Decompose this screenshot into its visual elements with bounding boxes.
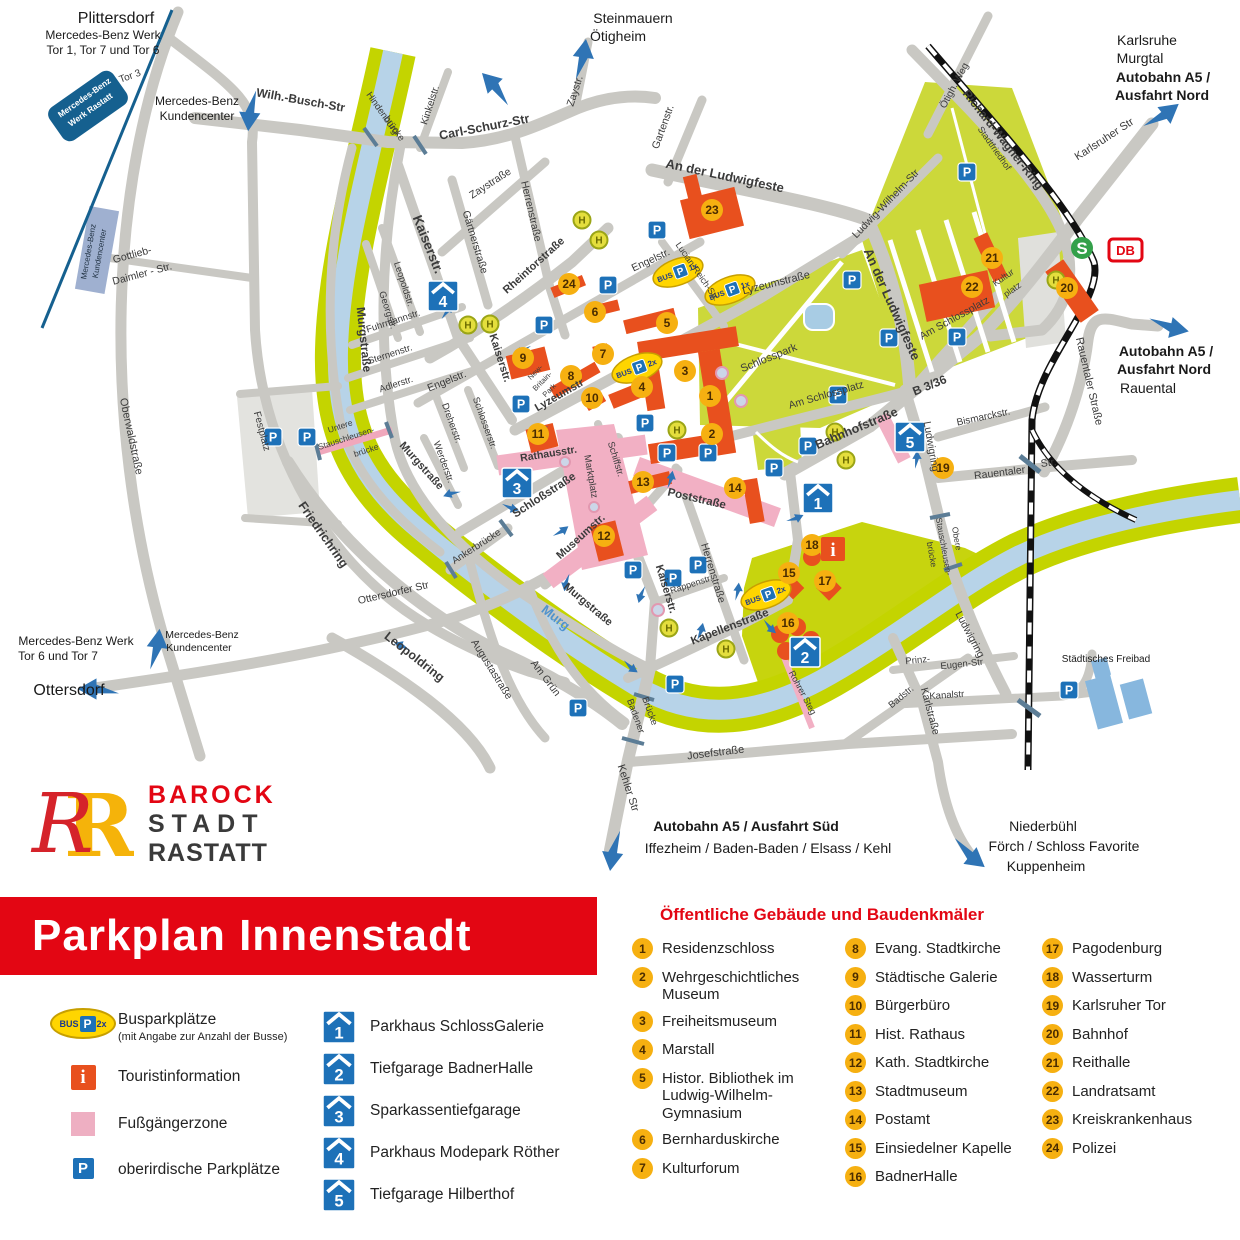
poi-number-badge: 19: [1042, 995, 1063, 1016]
place-label: Autobahn A5 / Ausfahrt Süd: [653, 818, 839, 834]
parking-icon-letter: P: [694, 559, 702, 573]
garage-icon-number: 2: [334, 1066, 343, 1085]
poi-label: Landratsamt: [1072, 1081, 1155, 1100]
poi-number-badge: 2: [632, 967, 653, 988]
freibad-building: [1085, 674, 1123, 729]
bus-stop-icon: H: [661, 620, 678, 637]
db-logo-icon: DB: [1109, 239, 1142, 261]
place-label: Ausfahrt Nord: [1117, 361, 1211, 377]
place-label: Iffezheim / Baden-Baden / Elsass / Kehl: [645, 840, 891, 856]
fountain: [735, 395, 747, 407]
garage-icon-number: 5: [334, 1192, 343, 1211]
poi-number-marker: 18: [801, 534, 823, 556]
poi-legend-item: 8Evang. Stadtkirche: [845, 938, 1041, 959]
poi-label: Wehrgeschichtliches Museum: [662, 967, 842, 1004]
poi-number-badge: 15: [845, 1138, 866, 1159]
logo-monogram: R R: [30, 778, 134, 870]
place-label: Mercedes-Benz Werk: [18, 634, 134, 648]
poi-legend-title: Öffentliche Gebäude und Baudenkmäler: [660, 905, 984, 925]
tourist-info-icon: i: [821, 537, 845, 561]
poi-legend-item: 21Reithalle: [1042, 1052, 1232, 1073]
poi-label: Evang. Stadtkirche: [875, 938, 1001, 957]
poi-label: Karlsruher Tor: [1072, 995, 1166, 1014]
poi-label: Reithalle: [1072, 1052, 1130, 1071]
parking-icon-letter: P: [1065, 684, 1073, 698]
place-label: Kundencenter: [160, 109, 235, 123]
poi-number-marker: 9: [512, 347, 534, 369]
poi-number-badge: 10: [845, 995, 866, 1016]
poi-column-3: 17Pagodenburg18Wasserturm19Karlsruher To…: [1042, 938, 1232, 1166]
parking-icon: P: [699, 444, 717, 462]
garage-icon: 3: [323, 1095, 355, 1127]
garage-icon: 5: [322, 1178, 356, 1212]
place-label: Förch / Schloss Favorite: [989, 838, 1140, 854]
pedestrian-icon-wrap: [48, 1112, 118, 1136]
bus-stop-icon: H: [669, 422, 686, 439]
garage-icon: 5: [323, 1179, 355, 1211]
legend-label: Touristinformation: [118, 1065, 240, 1086]
poi-legend-item: 23Kreiskrankenhaus: [1042, 1109, 1232, 1130]
poi-number-badge: 18: [1042, 967, 1063, 988]
parking-icon: P: [765, 459, 783, 477]
bus-stop-letter: H: [578, 216, 585, 227]
poi-label: Stadtmuseum: [875, 1081, 968, 1100]
poi-number-badge: 17: [1042, 938, 1063, 959]
parking-icon-letter: P: [671, 678, 679, 692]
poi-legend-item: 16BadnerHalle: [845, 1166, 1041, 1187]
poi-number-marker: 2: [701, 423, 723, 445]
place-label: Niederbühl: [1009, 818, 1077, 834]
bus-stop-letter: H: [665, 624, 672, 635]
poi-label: Hist. Rathaus: [875, 1024, 965, 1043]
poi-number-text: 3: [682, 364, 689, 378]
poi-legend-item: 24Polizei: [1042, 1138, 1232, 1159]
bus-stop-letter: H: [722, 645, 729, 656]
poi-number-marker: 4: [631, 376, 653, 398]
poi-legend-item: 10Bürgerbüro: [845, 995, 1041, 1016]
db-letters: DB: [1116, 243, 1135, 258]
poi-number-badge: 20: [1042, 1024, 1063, 1045]
poi-number-badge: 13: [845, 1081, 866, 1102]
place-label: Ottersdorf: [33, 682, 105, 699]
bus-stop-letter: H: [673, 426, 680, 437]
poi-number-badge: 7: [632, 1158, 653, 1179]
parking-icon: P: [535, 316, 553, 334]
parking-icon: P: [512, 395, 530, 413]
poi-number-marker: 20: [1056, 277, 1078, 299]
bus-oval-p: P: [80, 1016, 96, 1032]
bus-stop-icon: H: [460, 317, 477, 334]
poi-number-marker: 15: [778, 562, 800, 584]
parking-icon-letter: P: [704, 447, 712, 461]
title-banner: Parkplan Innenstadt: [0, 897, 597, 975]
fountain: [560, 457, 570, 467]
place-label: Kundencenter: [166, 642, 232, 654]
poi-label: Wasserturm: [1072, 967, 1152, 986]
garage-icon: 4: [323, 1137, 355, 1169]
place-label: Karlsruhe: [1117, 32, 1177, 48]
poi-number-badge: 8: [845, 938, 866, 959]
werk-boundary-line: [42, 10, 172, 328]
legend-item-fussgaengerzone: Fußgängerzone: [48, 1112, 316, 1136]
poi-legend-item: 13Stadtmuseum: [845, 1081, 1041, 1102]
direction-arrow-icon: [474, 65, 518, 109]
poi-number-text: 9: [520, 351, 527, 365]
poi-number-text: 14: [728, 481, 742, 495]
poi-number-marker: 11: [527, 423, 549, 445]
poi-label: Bahnhof: [1072, 1024, 1128, 1043]
bus-label: Busparkplätze: [118, 1011, 216, 1028]
poi-number-text: 17: [818, 574, 832, 588]
poi-number-text: 13: [636, 475, 650, 489]
street-label: Tor 3: [118, 68, 143, 86]
poi-number-text: 16: [781, 616, 795, 630]
legend-item-touristinformation: i Touristinformation: [48, 1065, 316, 1090]
poi-number-text: 15: [782, 566, 796, 580]
place-label: Tor 6 und Tor 7: [18, 649, 98, 663]
poi-number-text: 18: [805, 538, 819, 552]
street-label: Str.: [1040, 456, 1057, 470]
garage-icon: 1: [322, 1010, 356, 1044]
poi-legend-item: 20Bahnhof: [1042, 1024, 1232, 1045]
sbahn-letter: S: [1076, 239, 1087, 258]
bus-parking-icon: BUS P 2x: [50, 1008, 116, 1039]
poi-legend-item: 4Marstall: [632, 1039, 842, 1060]
garage-icon-number: 2: [801, 650, 810, 667]
poi-label: Bürgerbüro: [875, 995, 950, 1014]
parking-icon-letter: P: [641, 417, 649, 431]
parking-icon-letter: P: [574, 702, 582, 716]
poi-number-marker: 17: [814, 570, 836, 592]
poi-number-badge: 23: [1042, 1109, 1063, 1130]
place-label: Rauental: [1120, 380, 1176, 396]
garage-icon-number: 4: [439, 294, 448, 311]
legend-label: oberirdische Parkplätze: [118, 1158, 280, 1179]
poi-legend-item: 12Kath. Stadtkirche: [845, 1052, 1041, 1073]
bus-stop-letter: H: [595, 236, 602, 247]
bus-stop-letter: H: [464, 321, 471, 332]
surface-parking-icon: P: [73, 1158, 94, 1179]
garage-icon: 5: [895, 422, 925, 452]
poi-legend-item: 1Residenzschloss: [632, 938, 842, 959]
logo-line-rastatt: RASTATT: [148, 839, 276, 868]
tourist-info-icon: i: [71, 1065, 96, 1090]
legend-label: Busparkplätze(mit Angabe zur Anzahl der …: [118, 1008, 287, 1043]
parking-icon: P: [948, 328, 966, 346]
place-label: Kuppenheim: [1007, 858, 1086, 874]
parking-icon-letter: P: [303, 431, 311, 445]
poi-number-badge: 14: [845, 1109, 866, 1130]
fountain: [589, 502, 599, 512]
poi-number-marker: 5: [656, 312, 678, 334]
poi-number-marker: 21: [981, 247, 1003, 269]
place-label: Autobahn A5 /: [1119, 343, 1213, 359]
parking-icon: P: [636, 414, 654, 432]
garage-icon: 1: [803, 483, 833, 513]
garage-icon-number: 5: [906, 435, 915, 452]
poi-legend-item: 22Landratsamt: [1042, 1081, 1232, 1102]
parking-icon-letter: P: [953, 331, 961, 345]
parking-icon-letter: P: [517, 398, 525, 412]
poi-number-text: 23: [705, 203, 719, 217]
place-label: Autobahn A5 /: [1116, 69, 1210, 85]
poi-label: Histor. Bibliothek im Ludwig-Wilhelm-Gym…: [662, 1068, 842, 1122]
garage-legend-label: Tiefgarage Hilberthof: [370, 1186, 514, 1204]
poi-number-badge: 1: [632, 938, 653, 959]
bus-stop-letter: H: [842, 456, 849, 467]
legend-label: Fußgängerzone: [118, 1112, 227, 1133]
poi-number-badge: 21: [1042, 1052, 1063, 1073]
parking-icon: P: [298, 428, 316, 446]
poi-number-text: 21: [985, 251, 999, 265]
poi-number-badge: 12: [845, 1052, 866, 1073]
poi-legend-item: 15Einsiedelner Kapelle: [845, 1138, 1041, 1159]
poi-number-badge: 16: [845, 1166, 866, 1187]
info-icon-wrap: i: [48, 1065, 118, 1090]
garage-icon: 4: [322, 1136, 356, 1170]
poi-number-text: 12: [597, 529, 611, 543]
poi-label: BadnerHalle: [875, 1166, 958, 1185]
poi-label: Kath. Stadtkirche: [875, 1052, 989, 1071]
garage-icon: 2: [790, 637, 820, 667]
place-label: Ausfahrt Nord: [1115, 87, 1209, 103]
garage-legend-item: 1Parkhaus SchlossGalerie: [322, 1010, 612, 1044]
city-map: HHHHHHHHHHPPPPPPPPPPPPPPPPPPPPPPBUSP1xBU…: [0, 0, 1240, 890]
poi-number-marker: 3: [674, 360, 696, 382]
city-logo: R R BAROCK STADT RASTATT: [30, 778, 276, 870]
poi-number-text: 10: [585, 391, 599, 405]
legend-symbols: BUS P 2x Busparkplätze(mit Angabe zur An…: [48, 1008, 316, 1201]
poi-label: Pagodenburg: [1072, 938, 1162, 957]
fountain: [652, 604, 664, 616]
parking-icon-letter: P: [885, 332, 893, 346]
logo-line-barock: BAROCK: [148, 781, 276, 810]
poi-legend-item: 19Karlsruher Tor: [1042, 995, 1232, 1016]
parking-icon-letter: P: [629, 564, 637, 578]
street-label: Herrenstraße: [518, 180, 544, 243]
parking-icon-wrap: P: [48, 1158, 118, 1179]
legend-garages: 1Parkhaus SchlossGalerie2Tiefgarage Badn…: [322, 1010, 612, 1220]
garage-icon-number: 3: [334, 1108, 343, 1127]
parking-icon: P: [1060, 681, 1078, 699]
poi-number-badge: 24: [1042, 1138, 1063, 1159]
poi-number-marker: 7: [592, 343, 614, 365]
poi-label: Kulturforum: [662, 1158, 740, 1177]
parking-icon: P: [843, 271, 861, 289]
poi-number-text: 20: [1060, 281, 1074, 295]
poi-number-marker: 24: [558, 273, 580, 295]
parking-icon: P: [569, 699, 587, 717]
place-label: Murgtal: [1117, 50, 1164, 66]
parking-icon: P: [666, 675, 684, 693]
tourist-info-letter: i: [830, 540, 835, 561]
garage-icon: 3: [322, 1094, 356, 1128]
bus-stop-icon: H: [838, 452, 855, 469]
parking-icon-letter: P: [804, 440, 812, 454]
parking-icon: P: [958, 163, 976, 181]
poi-label: Freiheitsmuseum: [662, 1011, 777, 1030]
poi-legend-item: 3Freiheitsmuseum: [632, 1011, 842, 1032]
poi-number-marker: 10: [581, 387, 603, 409]
poi-number-text: 5: [664, 316, 671, 330]
garage-legend-label: Parkhaus SchlossGalerie: [370, 1018, 544, 1036]
garage-legend-label: Sparkassentiefgarage: [370, 1102, 521, 1120]
poi-number-marker: 6: [584, 301, 606, 323]
legend-item-parkplaetze: P oberirdische Parkplätze: [48, 1158, 316, 1179]
legend-item-busparkplaetze: BUS P 2x Busparkplätze(mit Angabe zur An…: [48, 1008, 316, 1043]
poi-number-marker: 22: [961, 276, 983, 298]
poi-legend-item: 7Kulturforum: [632, 1158, 842, 1179]
parking-icon-letter: P: [663, 447, 671, 461]
place-label: Mercedes-Benz: [165, 629, 239, 641]
poi-number-text: 1: [707, 389, 714, 403]
parking-icon-letter: P: [540, 319, 548, 333]
poi-number-marker: 16: [777, 612, 799, 634]
place-label: Mercedes-Benz: [155, 94, 239, 108]
parking-icon: P: [599, 276, 617, 294]
poi-column-1: 1Residenzschloss2Wehrgeschichtliches Mus…: [632, 938, 842, 1186]
street-label: Wilh.-Busch-Str: [255, 85, 346, 114]
poi-legend-item: 11Hist. Rathaus: [845, 1024, 1041, 1045]
schlosspark-pond: [804, 304, 834, 330]
fountain: [716, 367, 728, 379]
poi-number-badge: 11: [845, 1024, 866, 1045]
street-label: Schlosserstr.: [470, 396, 499, 451]
street-label: Rauentaler: [973, 464, 1026, 482]
poi-number-text: 7: [600, 347, 607, 361]
bus-stop-icon: H: [574, 212, 591, 229]
freibad-building: [1120, 679, 1152, 720]
parking-icon-letter: P: [963, 166, 971, 180]
poi-legend-item: 14Postamt: [845, 1109, 1041, 1130]
garage-legend-item: 4Parkhaus Modepark Röther: [322, 1136, 612, 1170]
garage-legend-item: 2Tiefgarage BadnerHalle: [322, 1052, 612, 1086]
poi-number-marker: 13: [632, 471, 654, 493]
bus-stop-letter: H: [486, 320, 493, 331]
poi-legend-item: 6Bernharduskirche: [632, 1129, 842, 1150]
garage-legend-label: Tiefgarage BadnerHalle: [370, 1060, 533, 1078]
place-label: Mercedes-Benz Werk: [45, 28, 161, 42]
map-canvas: HHHHHHHHHHPPPPPPPPPPPPPPPPPPPPPPBUSP1xBU…: [0, 0, 1240, 890]
garage-icon: 2: [323, 1053, 355, 1085]
poi-column-2: 8Evang. Stadtkirche9Städtische Galerie10…: [845, 938, 1041, 1195]
poi-label: Marstall: [662, 1039, 715, 1058]
street-label: Gartenstr.: [650, 103, 677, 150]
poi-legend-item: 9Städtische Galerie: [845, 967, 1041, 988]
garage-icon: 1: [323, 1011, 355, 1043]
poi-number-marker: 23: [701, 199, 723, 221]
sbahn-logo-icon: S: [1071, 237, 1093, 259]
place-label: Tor 1, Tor 7 und Tor 6: [47, 43, 160, 57]
poi-legend-item: 18Wasserturm: [1042, 967, 1232, 988]
poi-number-text: 2: [709, 427, 716, 441]
logo-r-red: R: [30, 778, 94, 870]
poi-legend-item: 5Histor. Bibliothek im Ludwig-Wilhelm-Gy…: [632, 1068, 842, 1122]
street-label: Leopoldstr.: [391, 260, 416, 308]
poi-label: Bernharduskirche: [662, 1129, 780, 1148]
poi-label: Residenzschloss: [662, 938, 775, 957]
direction-arrow-icon: [551, 523, 571, 542]
garage-icon-number: 4: [334, 1150, 344, 1169]
poi-number-text: 24: [562, 277, 576, 291]
garage-legend-item: 5Tiefgarage Hilberthof: [322, 1178, 612, 1212]
poi-number-badge: 3: [632, 1011, 653, 1032]
bus-oval-text: BUS: [59, 1019, 78, 1029]
poi-legend-item: 17Pagodenburg: [1042, 938, 1232, 959]
direction-arrow-icon: [946, 833, 992, 875]
garage-icon-number: 1: [334, 1024, 343, 1043]
logo-text: BAROCK STADT RASTATT: [148, 781, 276, 868]
place-label: Plittersdorf: [78, 10, 155, 27]
garage-icon-number: 3: [513, 481, 522, 498]
poi-number-badge: 9: [845, 967, 866, 988]
parking-icon-letter: P: [770, 462, 778, 476]
road: [628, 734, 1012, 762]
garage-icon-number: 1: [814, 496, 823, 513]
parking-icon-letter: P: [653, 224, 661, 238]
garage-icon: 2: [322, 1052, 356, 1086]
poi-label: Einsiedelner Kapelle: [875, 1138, 1012, 1157]
page-title: Parkplan Innenstadt: [32, 911, 472, 961]
bus-stop-icon: H: [482, 316, 499, 333]
parking-icon: P: [880, 329, 898, 347]
poi-number-text: 4: [639, 380, 646, 394]
garage-legend-label: Parkhaus Modepark Röther: [370, 1144, 560, 1162]
poi-legend-item: 2Wehrgeschichtliches Museum: [632, 967, 842, 1004]
bus-sublabel: (mit Angabe zur Anzahl der Busse): [118, 1031, 287, 1043]
parking-icon: P: [658, 444, 676, 462]
parking-icon: P: [624, 561, 642, 579]
poi-number-text: 22: [965, 280, 979, 294]
garage-icon: 3: [502, 468, 532, 498]
poi-number-badge: 5: [632, 1068, 653, 1089]
parking-icon-letter: P: [604, 279, 612, 293]
poi-label: Städtische Galerie: [875, 967, 998, 986]
logo-line-stadt: STADT: [148, 810, 276, 839]
place-label: Steinmauern: [593, 10, 672, 26]
poi-number-text: 11: [532, 427, 545, 441]
poi-number-text: 6: [592, 305, 599, 319]
poi-label: Kreiskrankenhaus: [1072, 1109, 1192, 1128]
poi-number-badge: 22: [1042, 1081, 1063, 1102]
bus-stop-icon: H: [591, 232, 608, 249]
poi-number-marker: 14: [724, 477, 746, 499]
parking-icon-letter: P: [848, 274, 856, 288]
parking-icon: P: [648, 221, 666, 239]
place-label: Städtisches Freibad: [1062, 654, 1150, 665]
poi-number-badge: 4: [632, 1039, 653, 1060]
garage-icon: 4: [428, 281, 458, 311]
bus-stop-icon: H: [718, 641, 735, 658]
place-label: Ötigheim: [590, 27, 646, 44]
bus-oval-count: 2x: [97, 1019, 107, 1029]
poi-label: Polizei: [1072, 1138, 1116, 1157]
poi-label: Postamt: [875, 1109, 930, 1128]
bus-parking-icon-wrap: BUS P 2x: [48, 1008, 118, 1039]
pedestrian-zone-icon: [71, 1112, 95, 1136]
poi-number-marker: 1: [699, 385, 721, 407]
poi-number-badge: 6: [632, 1129, 653, 1150]
garage-legend-item: 3Sparkassentiefgarage: [322, 1094, 612, 1128]
